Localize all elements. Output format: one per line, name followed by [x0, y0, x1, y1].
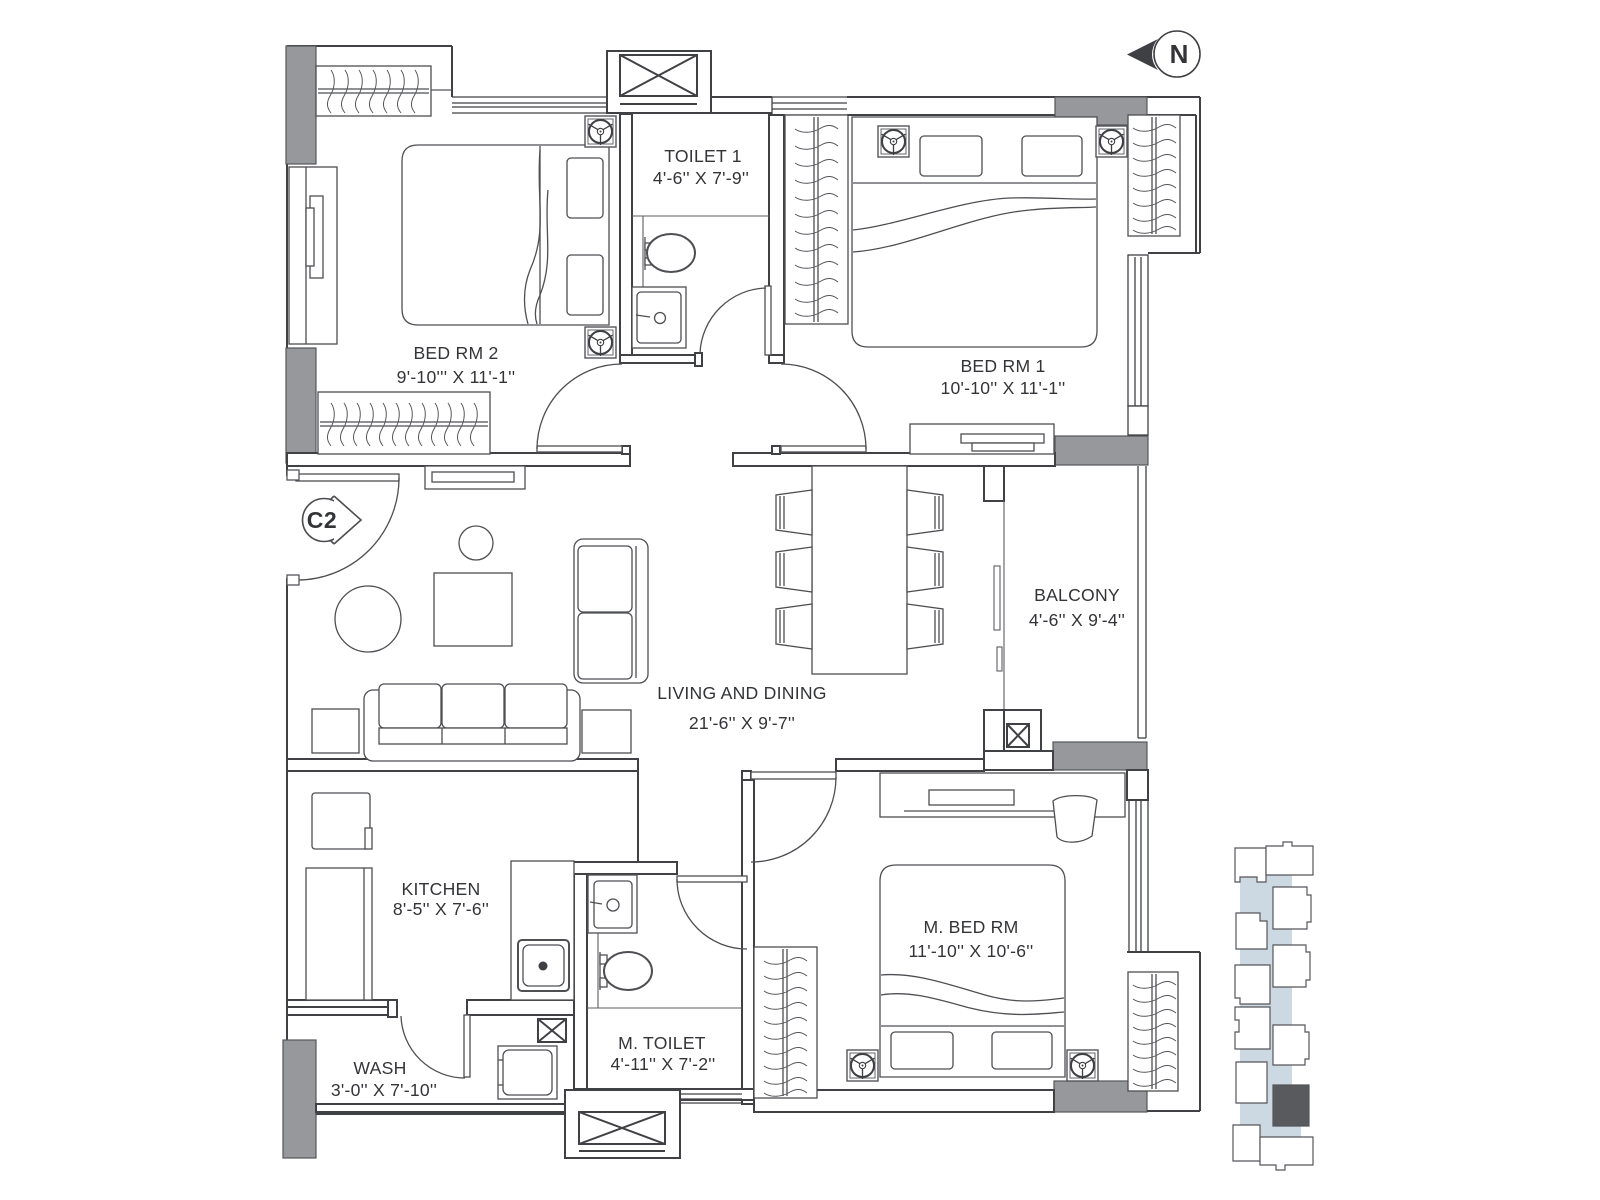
svg-text:4'-6'' X 9'-4'': 4'-6'' X 9'-4'': [1029, 610, 1125, 630]
svg-text:C2: C2: [307, 507, 337, 533]
svg-text:N: N: [1170, 39, 1189, 69]
svg-text:BALCONY: BALCONY: [1034, 585, 1120, 605]
svg-text:4'-11'' X 7'-2'': 4'-11'' X 7'-2'': [610, 1054, 715, 1074]
svg-text:21'-6'' X 9'-7'': 21'-6'' X 9'-7'': [689, 713, 795, 733]
svg-text:LIVING AND DINING: LIVING AND DINING: [657, 683, 826, 703]
svg-text:TOILET 1: TOILET 1: [664, 146, 742, 166]
svg-text:M. TOILET: M. TOILET: [618, 1033, 706, 1053]
svg-text:11'-10'' X 10'-6'': 11'-10'' X 10'-6'': [908, 941, 1033, 961]
svg-text:BED RM 2: BED RM 2: [413, 343, 498, 363]
svg-text:10'-10'' X 11'-1'': 10'-10'' X 11'-1'': [940, 378, 1065, 398]
svg-text:4'-6'' X 7'-9'': 4'-6'' X 7'-9'': [653, 168, 749, 188]
svg-text:8'-5'' X 7'-6'': 8'-5'' X 7'-6'': [393, 899, 489, 919]
svg-text:9'-10''' X 11'-1'': 9'-10''' X 11'-1'': [397, 367, 516, 387]
svg-text:3'-0'' X 7'-10'': 3'-0'' X 7'-10'': [331, 1080, 437, 1100]
svg-text:BED RM 1: BED RM 1: [960, 356, 1045, 376]
svg-text:KITCHEN: KITCHEN: [402, 879, 481, 899]
svg-text:M. BED RM: M. BED RM: [923, 917, 1018, 937]
svg-text:WASH: WASH: [353, 1058, 406, 1078]
